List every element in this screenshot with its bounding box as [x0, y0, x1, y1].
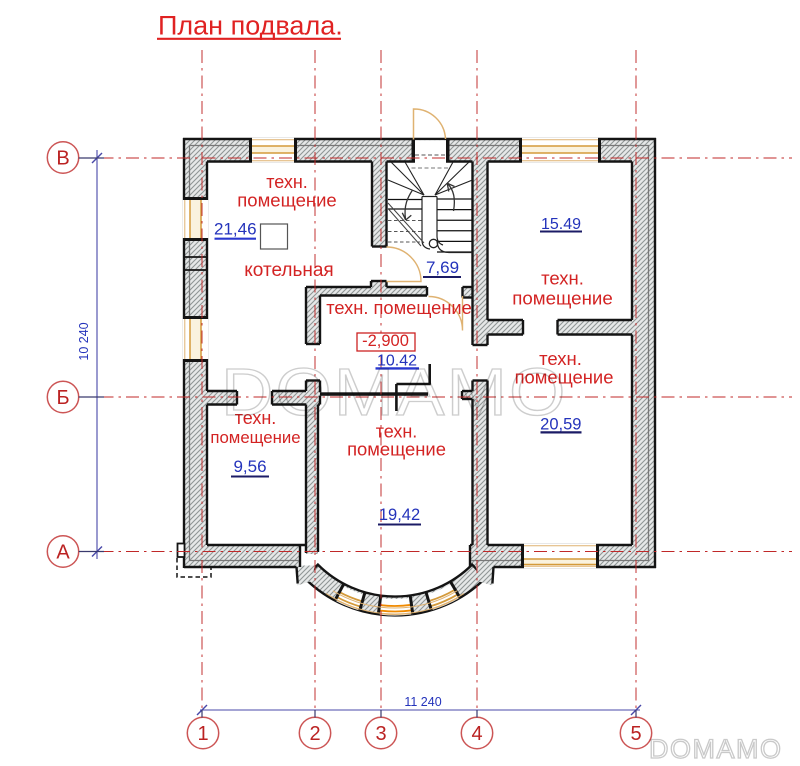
- svg-text:4: 4: [471, 723, 482, 745]
- svg-text:21,46: 21,46: [214, 220, 257, 239]
- svg-text:DOMAMO: DOMAMO: [649, 734, 783, 764]
- svg-text:7,69: 7,69: [426, 258, 459, 277]
- svg-text:1: 1: [197, 723, 208, 745]
- svg-text:помещение: помещение: [512, 288, 612, 309]
- svg-text:5: 5: [630, 723, 641, 745]
- svg-text:котельная: котельная: [244, 260, 333, 281]
- svg-text:11 240: 11 240: [404, 695, 441, 709]
- svg-text:10 240: 10 240: [77, 322, 91, 360]
- svg-text:помещение: помещение: [237, 190, 336, 211]
- svg-text:помещение: помещение: [347, 439, 446, 460]
- svg-text:19,42: 19,42: [379, 506, 420, 524]
- svg-text:2: 2: [309, 723, 320, 745]
- svg-text:помещение: помещение: [210, 428, 300, 447]
- svg-text:9,56: 9,56: [233, 457, 266, 476]
- svg-text:Б: Б: [56, 387, 69, 409]
- svg-text:План подвала.: План подвала.: [158, 11, 343, 41]
- svg-text:DOMAMO: DOMAMO: [221, 354, 568, 429]
- svg-text:15.49: 15.49: [541, 216, 581, 233]
- svg-text:-2,900: -2,900: [362, 332, 409, 350]
- svg-text:техн. помещение: техн. помещение: [326, 297, 472, 318]
- svg-text:3: 3: [375, 723, 386, 745]
- svg-text:В: В: [56, 148, 69, 170]
- svg-text:техн.: техн.: [541, 268, 584, 289]
- svg-text:А: А: [56, 542, 70, 564]
